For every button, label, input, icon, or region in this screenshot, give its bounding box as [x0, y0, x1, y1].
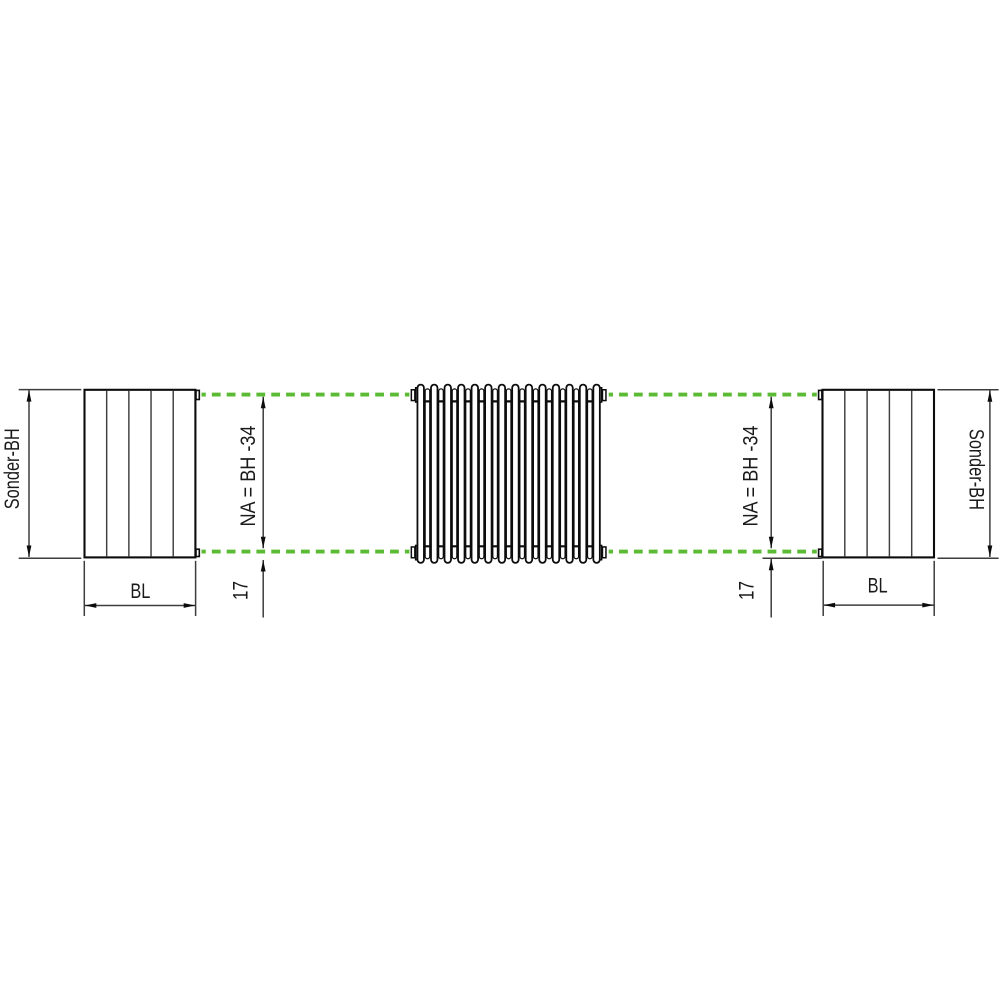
svg-text:Sonder-BH: Sonder-BH	[965, 429, 989, 510]
svg-text:17: 17	[734, 581, 758, 600]
svg-text:BL: BL	[868, 574, 888, 598]
svg-text:BL: BL	[130, 579, 150, 603]
svg-text:Sonder-BH: Sonder-BH	[0, 428, 24, 509]
svg-text:NA = BH -34: NA = BH -34	[738, 425, 762, 526]
svg-text:17: 17	[228, 581, 252, 600]
svg-text:NA = BH -34: NA = BH -34	[236, 425, 260, 526]
